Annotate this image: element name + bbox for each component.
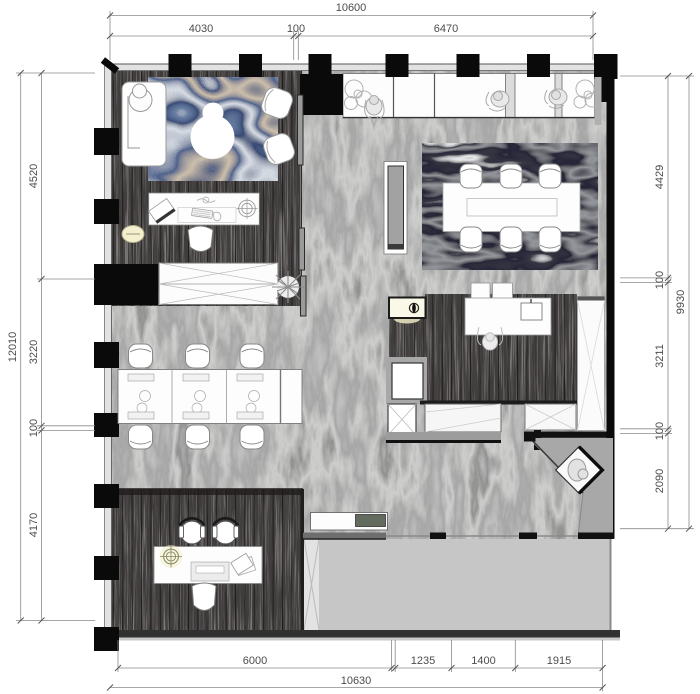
svg-text:4429: 4429 [654,165,666,189]
svg-text:4520: 4520 [28,164,40,188]
svg-text:4170: 4170 [28,513,40,537]
svg-text:1915: 1915 [547,655,571,667]
svg-text:9930: 9930 [675,290,687,314]
svg-text:100: 100 [654,271,666,289]
svg-text:4030: 4030 [189,23,213,35]
svg-text:6470: 6470 [434,23,458,35]
svg-text:100: 100 [28,419,40,437]
svg-text:2090: 2090 [654,469,666,493]
svg-text:6000: 6000 [243,655,267,667]
svg-text:12010: 12010 [7,332,19,363]
svg-text:1400: 1400 [471,655,495,667]
svg-text:10600: 10600 [336,2,367,14]
svg-text:3211: 3211 [654,344,666,368]
svg-text:3220: 3220 [28,340,40,364]
svg-text:1235: 1235 [411,655,435,667]
svg-text:100: 100 [654,422,666,440]
svg-text:10630: 10630 [341,675,372,687]
svg-text:100: 100 [287,23,305,35]
